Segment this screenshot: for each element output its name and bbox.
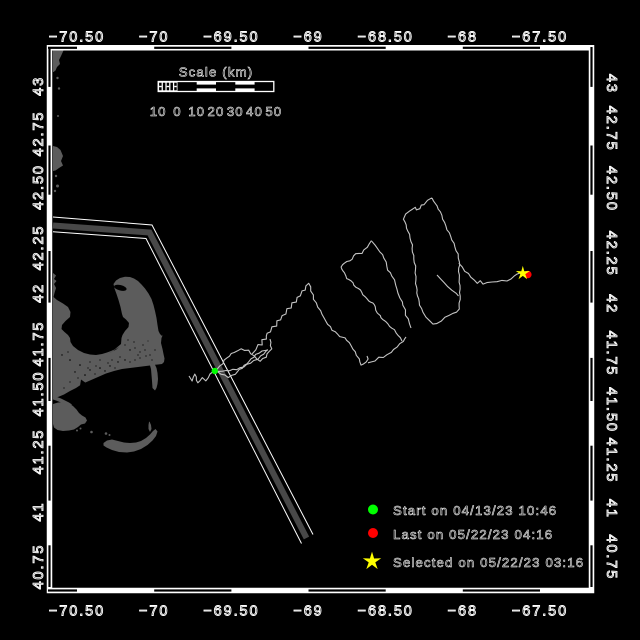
svg-text:40: 40 bbox=[246, 104, 263, 119]
svg-text:−70.50: −70.50 bbox=[49, 30, 105, 46]
svg-text:42.75: 42.75 bbox=[31, 111, 47, 157]
svg-text:−69.50: −69.50 bbox=[203, 30, 259, 46]
svg-text:41.50: 41.50 bbox=[603, 387, 619, 433]
svg-text:−68: −68 bbox=[448, 30, 478, 46]
svg-text:42.50: 42.50 bbox=[31, 164, 47, 210]
svg-text:−69: −69 bbox=[293, 30, 323, 46]
svg-text:40.75: 40.75 bbox=[31, 544, 47, 590]
svg-text:30: 30 bbox=[227, 104, 244, 119]
svg-text:−67.50: −67.50 bbox=[512, 604, 568, 620]
svg-text:−68: −68 bbox=[448, 604, 478, 620]
svg-text:41: 41 bbox=[603, 499, 619, 519]
svg-text:42.25: 42.25 bbox=[603, 231, 619, 277]
svg-text:41.25: 41.25 bbox=[31, 429, 47, 475]
svg-text:Last on 05/22/23 04:16: Last on 05/22/23 04:16 bbox=[393, 527, 553, 542]
svg-text:10: 10 bbox=[150, 104, 167, 119]
svg-text:41.75: 41.75 bbox=[603, 331, 619, 377]
svg-text:43: 43 bbox=[603, 74, 619, 94]
svg-text:Start on 04/13/23 10:46: Start on 04/13/23 10:46 bbox=[393, 503, 557, 518]
svg-text:−68.50: −68.50 bbox=[358, 604, 414, 620]
svg-text:42: 42 bbox=[603, 294, 619, 314]
svg-text:42.75: 42.75 bbox=[603, 106, 619, 152]
svg-text:−70: −70 bbox=[139, 604, 169, 620]
svg-text:41.75: 41.75 bbox=[31, 321, 47, 367]
svg-text:40.75: 40.75 bbox=[603, 534, 619, 580]
svg-text:Scale (km): Scale (km) bbox=[179, 65, 254, 80]
svg-text:−70.50: −70.50 bbox=[49, 604, 105, 620]
svg-text:10: 10 bbox=[188, 104, 205, 119]
svg-text:−68.50: −68.50 bbox=[358, 30, 414, 46]
svg-text:41.50: 41.50 bbox=[31, 371, 47, 417]
svg-text:43: 43 bbox=[31, 76, 47, 96]
svg-text:50: 50 bbox=[265, 104, 282, 119]
svg-text:−70: −70 bbox=[139, 30, 169, 46]
svg-text:41: 41 bbox=[31, 502, 47, 522]
svg-text:−69: −69 bbox=[293, 604, 323, 620]
svg-text:42: 42 bbox=[31, 283, 47, 303]
svg-text:Selected on 05/22/23 03:16: Selected on 05/22/23 03:16 bbox=[393, 555, 584, 570]
svg-text:42.50: 42.50 bbox=[603, 166, 619, 212]
svg-text:41.25: 41.25 bbox=[603, 438, 619, 484]
svg-text:0: 0 bbox=[173, 104, 181, 119]
svg-text:−67.50: −67.50 bbox=[512, 30, 568, 46]
svg-text:−69.50: −69.50 bbox=[203, 604, 259, 620]
svg-text:42.25: 42.25 bbox=[31, 225, 47, 271]
svg-text:20: 20 bbox=[208, 104, 225, 119]
